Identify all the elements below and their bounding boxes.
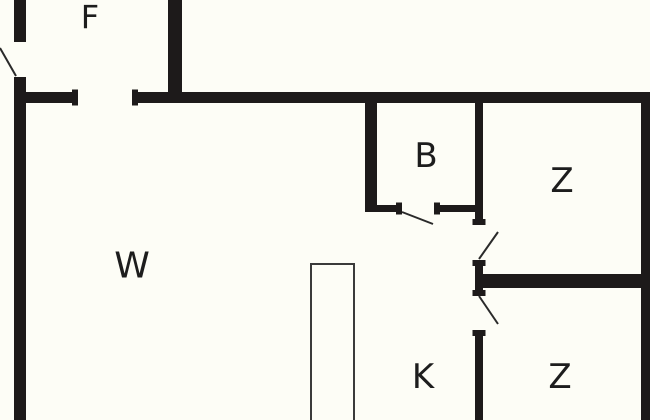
wall-b-left-wall (365, 103, 377, 212)
wall-cap-zbot-door-top (473, 290, 486, 296)
wall-between-z-wall (483, 274, 641, 288)
floor-plan-diagram: FWBZKZ (0, 0, 650, 420)
room-label-f: F (81, 0, 99, 36)
room-label-z-bottom: Z (548, 357, 571, 397)
wall-cap-b-door-right (434, 203, 440, 215)
wall-cap-ztop-door-top (473, 219, 486, 225)
floor-plan-page: FWBZKZ (0, 0, 650, 420)
room-label-w: W (114, 246, 150, 287)
wall-right-wall (641, 92, 650, 420)
wall-corridor-wall-lower (475, 330, 483, 420)
room-label-k: K (412, 357, 436, 397)
wall-left-wall-upper (14, 0, 26, 42)
room-label-z-top: Z (550, 161, 573, 201)
wall-cap-zbot-door-bottom (473, 330, 486, 336)
wall-cap-b-door-left (396, 203, 402, 215)
wall-top-wall-main-seg (132, 92, 650, 103)
wall-cap-f-opening-right (132, 90, 138, 106)
room-label-b: B (414, 136, 437, 176)
wall-top-wall-left-seg (14, 92, 78, 103)
wall-cap-f-opening-left (72, 90, 78, 106)
wall-left-wall-main (14, 77, 26, 420)
wall-corridor-wall-upper (475, 103, 483, 225)
wall-f-right-wall (168, 0, 182, 103)
wall-cap-ztop-door-bottom (473, 260, 486, 266)
